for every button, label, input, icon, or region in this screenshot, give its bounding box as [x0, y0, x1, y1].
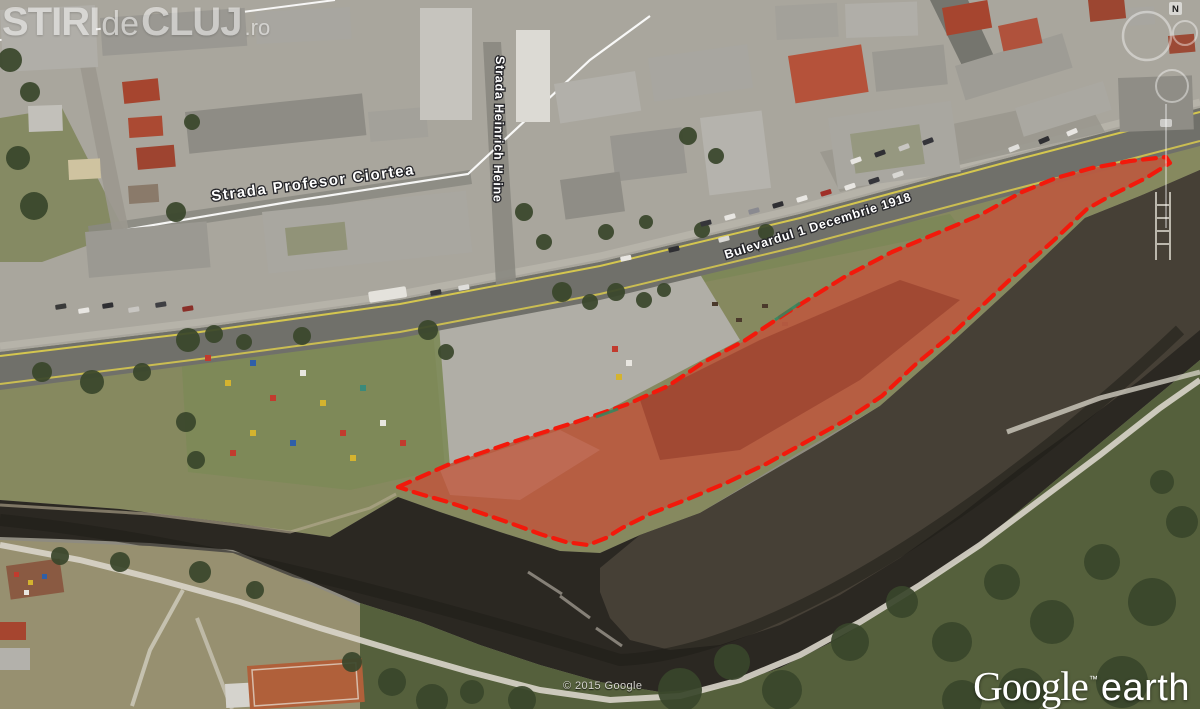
svg-text:N: N: [1172, 4, 1179, 15]
logo-google-wordmark: Google: [973, 662, 1088, 709]
satellite-scene: Strada Profesor Ciortea Strada Heinrich …: [0, 0, 1200, 709]
logo-earth-wordmark: earth: [1101, 667, 1190, 709]
zoom-slider-handle[interactable]: [1160, 119, 1172, 127]
satellite-map-viewport[interactable]: Strada Profesor Ciortea Strada Heinrich …: [0, 0, 1200, 709]
google-earth-logo: Google ™ earth: [973, 662, 1190, 709]
street-label-heine: Strada Heinrich Heine: [490, 56, 507, 203]
site-watermark: STIRI de CLUJ .ro: [2, 0, 270, 45]
watermark-word-cluj: CLUJ: [141, 0, 241, 45]
watermark-suffix-ro: .ro: [245, 15, 271, 41]
north-badge[interactable]: N: [1169, 2, 1182, 15]
watermark-word-stiri: STIRI: [2, 0, 99, 45]
logo-trademark-symbol: ™: [1089, 674, 1098, 684]
watermark-word-de: de: [101, 5, 139, 44]
copyright-text: © 2015 Google: [563, 680, 642, 692]
